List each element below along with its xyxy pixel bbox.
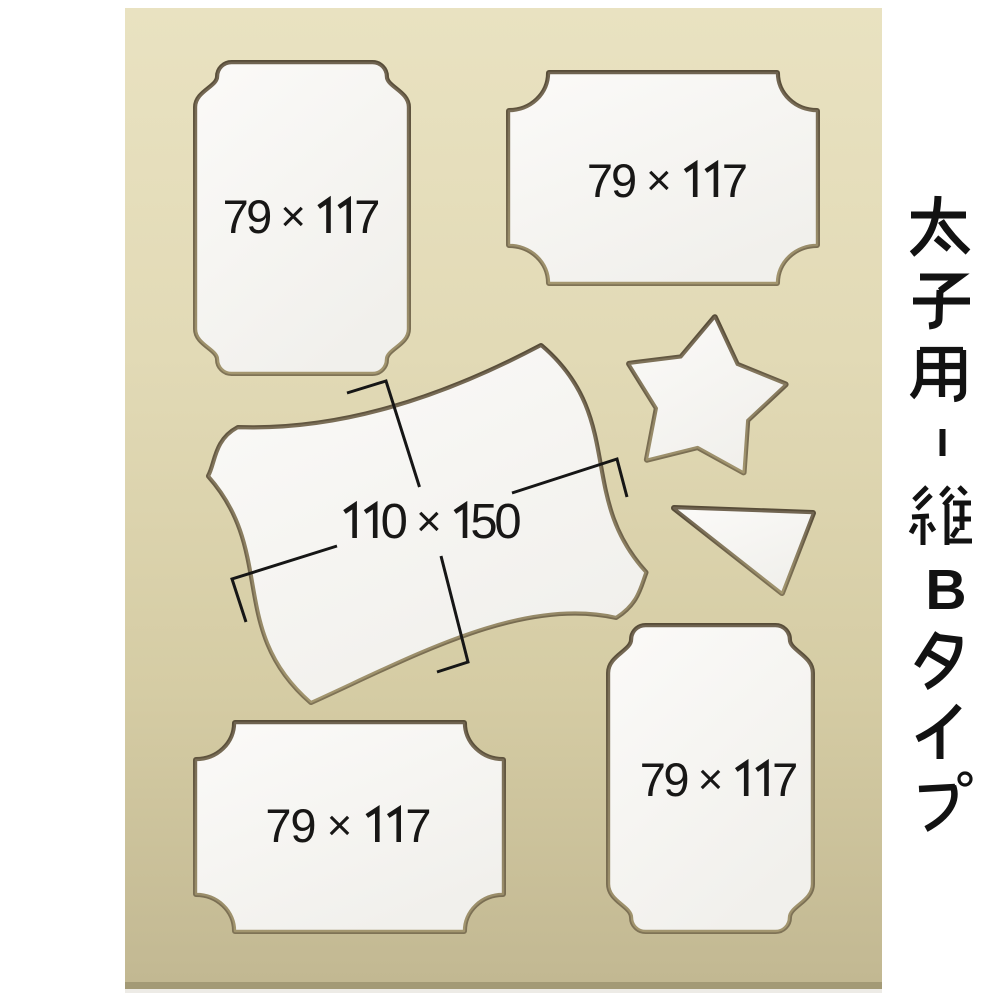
svg-text:×: × <box>698 755 724 804</box>
svg-text:9: 9 <box>290 799 316 852</box>
svg-text:×: × <box>280 192 306 241</box>
svg-text:7: 7 <box>223 190 249 243</box>
svg-text:9: 9 <box>611 154 637 207</box>
svg-text:7: 7 <box>722 154 748 207</box>
svg-text:0: 0 <box>494 495 521 549</box>
svg-text:7: 7 <box>640 753 666 806</box>
svg-text:0: 0 <box>381 495 408 549</box>
svg-text:9: 9 <box>246 190 272 243</box>
svg-text:7: 7 <box>265 799 291 852</box>
svg-text:B: B <box>925 558 966 622</box>
svg-text:×: × <box>327 801 353 850</box>
svg-text:7: 7 <box>772 753 798 806</box>
svg-text:9: 9 <box>663 753 689 806</box>
svg-text:×: × <box>646 156 672 205</box>
svg-text:7: 7 <box>354 190 380 243</box>
svg-text:7: 7 <box>405 799 431 852</box>
svg-text:7: 7 <box>587 154 613 207</box>
svg-text:×: × <box>416 497 442 546</box>
